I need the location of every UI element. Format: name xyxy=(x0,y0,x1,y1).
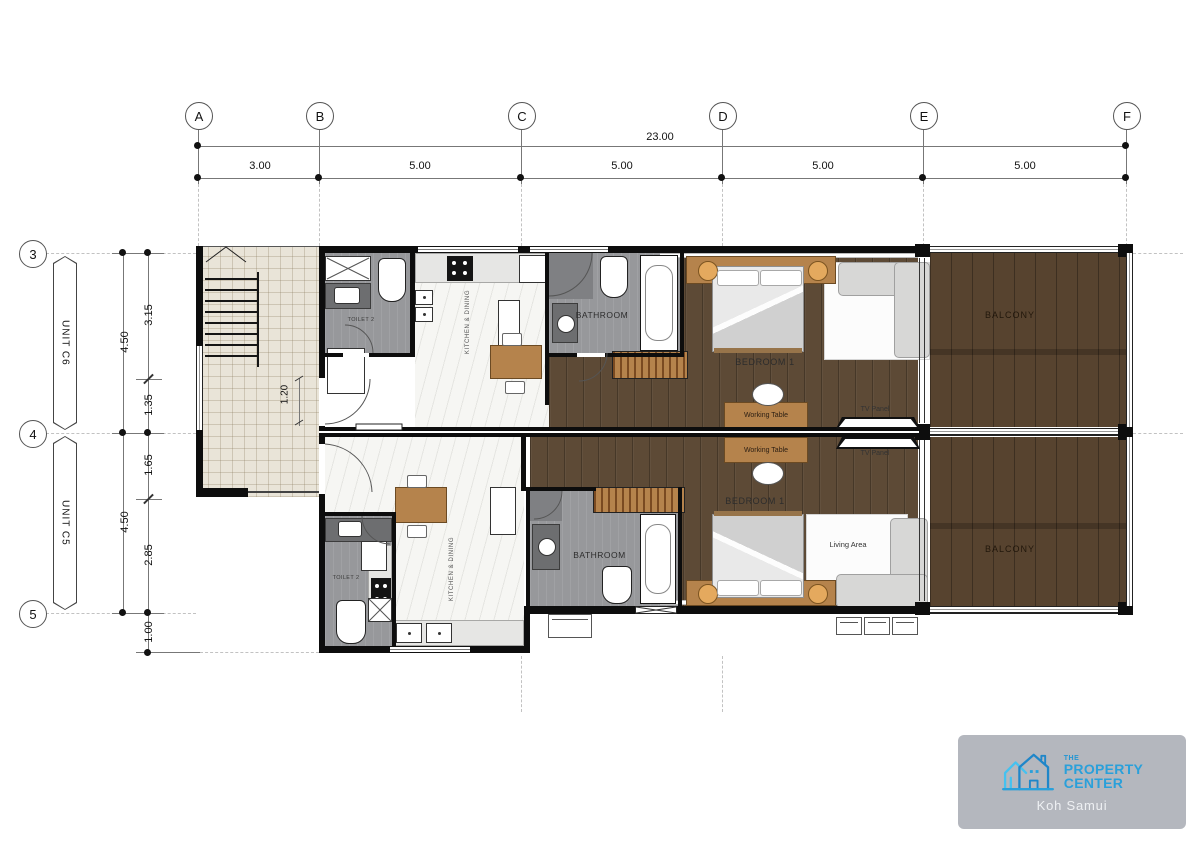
dimension-line-segments xyxy=(198,178,1126,179)
dim-dot xyxy=(144,649,151,656)
c6-balcony-label: BALCONY xyxy=(970,310,1050,320)
dim-dot xyxy=(194,142,201,149)
outdoor-stool xyxy=(864,617,890,635)
dining-chair xyxy=(502,333,522,346)
sliding-door xyxy=(924,440,925,601)
stair-tread xyxy=(205,322,257,324)
dim-seg-ef: 5.00 xyxy=(1001,160,1049,172)
dim-dot xyxy=(919,174,926,181)
c5-toilet-label: TOILET 2 xyxy=(316,575,376,581)
grid-centerline xyxy=(923,184,924,246)
balcony-rail xyxy=(1126,437,1133,606)
dimension-line-overall xyxy=(198,146,1126,147)
pillow xyxy=(717,270,759,286)
c5-tv-label: TV Panel xyxy=(845,450,905,457)
grid-col-bubble-f: F xyxy=(1113,102,1141,130)
stair-tread xyxy=(205,344,257,346)
window xyxy=(635,606,677,614)
door-opening xyxy=(343,353,369,357)
c6-tv-label: TV Panel xyxy=(845,406,905,413)
outdoor-stool xyxy=(836,617,862,635)
c6-entry-opening xyxy=(319,378,325,426)
partition-wall xyxy=(526,487,596,491)
c5-bedroom-label: BEDROOM 1 xyxy=(710,496,800,506)
dim-dot xyxy=(517,174,524,181)
dim-left-285: 2.85 xyxy=(143,531,155,579)
dining-table xyxy=(395,487,447,523)
dim-dot xyxy=(315,174,322,181)
bathtub xyxy=(640,255,678,351)
balcony-rail xyxy=(930,606,1118,614)
partition-wall xyxy=(545,357,549,405)
stove xyxy=(447,256,473,281)
desk-chair xyxy=(752,383,784,406)
dining-chair xyxy=(505,381,525,394)
sliding-door xyxy=(924,258,925,423)
wall xyxy=(319,246,923,253)
dim-dot xyxy=(119,249,126,256)
dim-left-135: 1.35 xyxy=(143,381,155,429)
dim-dot xyxy=(144,249,151,256)
pillow xyxy=(760,270,802,286)
grid-row-bubble-5: 5 xyxy=(19,600,47,628)
c5-living-label: Living Area xyxy=(813,540,883,549)
terrace-window xyxy=(196,346,203,430)
stair-tread xyxy=(205,289,257,291)
wall xyxy=(196,488,248,497)
toilet-fixture xyxy=(602,566,632,604)
floorplan-canvas: A B C D E F 23.00 3.00 5.00 5.00 5.00 5.… xyxy=(0,0,1200,848)
bedside-lamp xyxy=(808,261,828,281)
terrace-edge xyxy=(196,246,319,247)
c6-bedroom-label: BEDROOM 1 xyxy=(720,357,810,367)
party-wall-core xyxy=(319,431,919,433)
dim-seg-cd: 5.00 xyxy=(598,160,646,172)
closet xyxy=(361,541,387,571)
wall xyxy=(524,606,930,614)
shower xyxy=(549,253,593,299)
partition-wall xyxy=(325,512,392,516)
kitchen-island xyxy=(490,487,516,535)
dim-seg-de: 5.00 xyxy=(799,160,847,172)
logo-property: PROPERTY xyxy=(1064,762,1143,776)
stair-tread xyxy=(205,355,257,357)
grid-centerline xyxy=(319,184,320,246)
house-icon xyxy=(1001,751,1055,793)
toilet-fixture xyxy=(336,600,366,644)
grid-centerline xyxy=(722,656,723,712)
dining-table xyxy=(490,345,542,379)
sink-dot xyxy=(423,313,426,316)
window xyxy=(418,246,518,253)
sink-dot xyxy=(438,632,441,635)
wardrobe xyxy=(593,487,685,513)
grid-col-bubble-e: E xyxy=(910,102,938,130)
c6-entry-dim: 1.20 xyxy=(280,371,291,419)
partition-wall xyxy=(680,253,684,357)
unit-tag-c6-label: UNIT C6 xyxy=(60,320,71,366)
c5-bathroom-label: BATHROOM xyxy=(552,550,647,560)
bed-foot-bench xyxy=(714,348,802,353)
dim-ext xyxy=(200,652,319,653)
dim-overall-width: 23.00 xyxy=(636,131,684,143)
grid-centerline xyxy=(521,184,522,246)
sink-dot xyxy=(408,632,411,635)
c5-balcony-label: BALCONY xyxy=(970,544,1050,554)
sink-dot xyxy=(423,296,426,299)
pillow xyxy=(717,580,759,596)
dim-dot xyxy=(119,609,126,616)
column xyxy=(915,244,930,257)
bedside-lamp xyxy=(808,584,828,604)
sliding-door xyxy=(919,440,920,601)
partition-wall xyxy=(545,353,680,357)
partition-wall xyxy=(325,353,415,357)
pillow xyxy=(760,580,802,596)
dim-dot xyxy=(718,174,725,181)
wash-basin xyxy=(338,521,362,537)
terrace-edge xyxy=(248,491,319,493)
deck-seam xyxy=(930,523,1126,529)
stair-tread xyxy=(205,300,257,302)
balcony-rail xyxy=(930,246,1118,253)
toilet-fixture xyxy=(600,256,628,298)
grid-centerline xyxy=(722,184,723,246)
c5-entry-opening xyxy=(319,444,325,494)
dim-dot xyxy=(1122,174,1129,181)
property-center-logo: THE PROPERTY CENTER Koh Samui xyxy=(958,735,1186,829)
unit-tag-c5: UNIT C5 xyxy=(53,436,77,610)
grid-row-bubble-3: 3 xyxy=(19,240,47,268)
c5-balcony-deck xyxy=(930,437,1126,606)
partition-wall xyxy=(526,487,530,606)
dim-left-45-top: 4.50 xyxy=(119,318,131,366)
grid-col-bubble-d: D xyxy=(709,102,737,130)
c6-entry-dimline xyxy=(299,378,300,426)
unit-tag-c5-label: UNIT C5 xyxy=(60,500,71,546)
toilet-fixture xyxy=(378,258,406,302)
outdoor-stool xyxy=(892,617,918,635)
c6-working-table-label: Working Table xyxy=(725,412,807,419)
bed-foot-bench xyxy=(714,511,802,516)
grid-col-bubble-b: B xyxy=(306,102,334,130)
c6-toilet-label: TOILET 2 xyxy=(331,317,391,323)
outdoor-bench xyxy=(548,614,592,638)
dim-seg-bc: 5.00 xyxy=(396,160,444,172)
partition-wall xyxy=(521,437,526,491)
logo-location: Koh Samui xyxy=(1037,798,1108,813)
dim-dot xyxy=(119,429,126,436)
stair-tread xyxy=(205,278,257,280)
partition-wall xyxy=(678,487,682,606)
partition-wall xyxy=(410,253,415,357)
dining-chair xyxy=(407,475,427,488)
shower xyxy=(530,491,562,521)
dim-dot xyxy=(1122,142,1129,149)
shower-tray xyxy=(325,256,371,281)
logo-center: CENTER xyxy=(1064,776,1143,790)
grid-centerline xyxy=(1126,184,1127,246)
bedside-lamp xyxy=(698,261,718,281)
grid-row-bubble-4: 4 xyxy=(19,420,47,448)
desk-chair xyxy=(752,462,784,485)
dim-left-165: 1.65 xyxy=(143,441,155,489)
wash-basin xyxy=(334,287,360,304)
c5-working-table-label: Working Table xyxy=(725,447,807,454)
fridge xyxy=(519,255,547,283)
bedside-lamp xyxy=(698,584,718,604)
window xyxy=(390,646,470,653)
c6-kitchen-label: KITCHEN & DINING xyxy=(465,282,471,362)
balcony-divider-rail xyxy=(930,428,1118,436)
partition-wall xyxy=(545,253,549,357)
column xyxy=(915,602,930,615)
c6-balcony-deck xyxy=(930,253,1126,427)
shower-tray xyxy=(368,598,392,622)
c5-kitchen-label: KITCHEN & DINING xyxy=(449,529,455,609)
wall xyxy=(196,430,203,497)
wall xyxy=(196,246,203,346)
grid-centerline xyxy=(198,184,199,246)
c6-tv-panel xyxy=(836,417,920,429)
dim-seg-ab: 3.00 xyxy=(236,160,284,172)
stair-tread xyxy=(205,311,257,313)
sliding-door xyxy=(919,258,920,423)
dim-left-315: 3.15 xyxy=(143,291,155,339)
c6-bathroom-label: BATHROOM xyxy=(558,310,646,320)
deck-seam xyxy=(930,349,1126,355)
dim-dot xyxy=(144,429,151,436)
stair-rail xyxy=(257,272,259,367)
grid-col-bubble-c: C xyxy=(508,102,536,130)
unit-tag-c6: UNIT C6 xyxy=(53,256,77,430)
grid-centerline xyxy=(521,656,522,712)
c5-working-table: Working Table xyxy=(724,437,808,463)
balcony-rail xyxy=(1126,253,1133,427)
window xyxy=(530,246,608,253)
dim-left-45-bottom: 4.50 xyxy=(119,498,131,546)
grid-row-line xyxy=(1133,253,1183,254)
dining-chair xyxy=(407,525,427,538)
stair-tread xyxy=(205,333,257,335)
door-opening xyxy=(577,353,605,357)
grid-col-bubble-a: A xyxy=(185,102,213,130)
partition-wall xyxy=(392,512,396,646)
dim-dot xyxy=(194,174,201,181)
c5-tv-panel xyxy=(836,437,920,449)
dim-dot xyxy=(144,609,151,616)
grid-row-line xyxy=(1133,433,1183,434)
